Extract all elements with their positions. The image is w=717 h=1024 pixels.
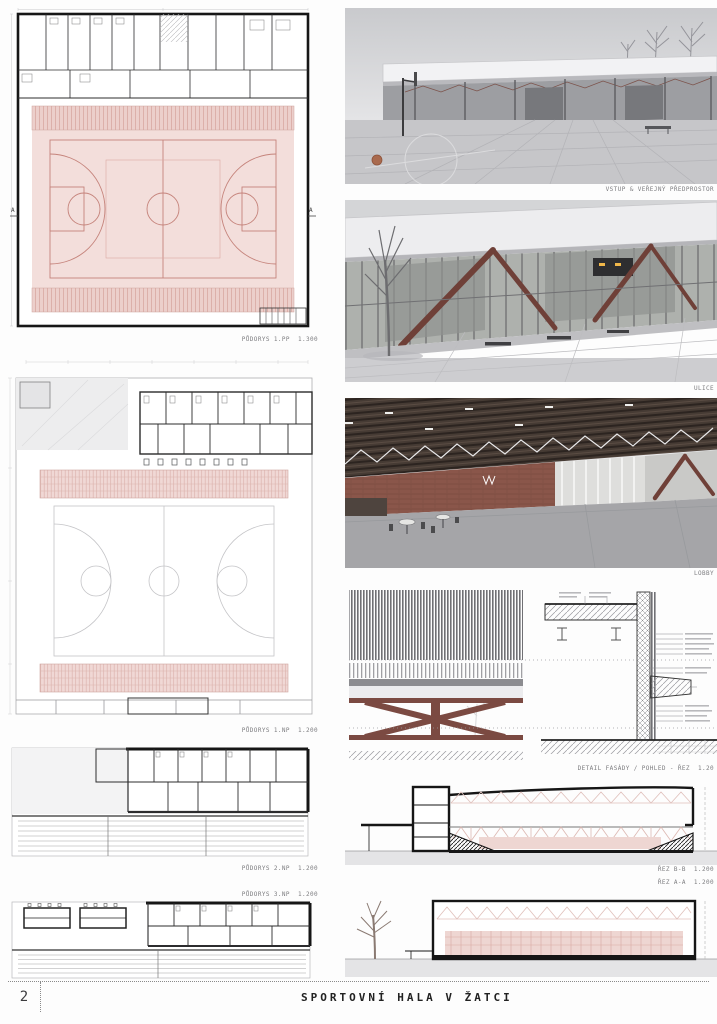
sheet-title: SPORTOVNÍ HALA V ŽATCI bbox=[301, 991, 513, 1004]
render-lobby-caption: LOBBY bbox=[694, 570, 714, 577]
page-number: 2 bbox=[20, 989, 28, 1005]
plan-1np-caption: PŮDORYS 1.NP 1.200 bbox=[242, 727, 318, 734]
bare-tree bbox=[357, 901, 391, 959]
ground bbox=[345, 851, 717, 865]
plan-1pp-caption: PŮDORYS 1.PP 1.300 bbox=[242, 336, 318, 343]
shaft-hatch bbox=[160, 14, 188, 42]
facade-detail-caption: DETAIL FASÁDY / POHLED - ŘEZ 1.20 bbox=[578, 765, 714, 772]
section-aa-svg bbox=[345, 889, 717, 977]
presentation-board: A A PŮDORYS 1.PP 1.300 bbox=[0, 0, 717, 1024]
base-slab bbox=[433, 955, 695, 958]
render-street-svg bbox=[345, 200, 717, 382]
render-entry-svg bbox=[345, 8, 717, 184]
tree-shadow bbox=[363, 351, 423, 361]
section-aa-drawing bbox=[345, 889, 717, 977]
plan-2np-caption: PŮDORYS 2.NP 1.200 bbox=[242, 865, 318, 872]
section-bb-caption: ŘEZ B-B 1.200 bbox=[658, 866, 714, 873]
facade-elevation bbox=[349, 590, 523, 760]
base-slab bbox=[449, 850, 693, 853]
plaza bbox=[345, 120, 717, 184]
bar-counter bbox=[345, 498, 387, 516]
plan-3np-drawing bbox=[8, 898, 314, 980]
render-entry bbox=[345, 8, 717, 184]
render-street bbox=[345, 200, 717, 382]
ground bbox=[345, 959, 717, 977]
section-marker-a-right: A bbox=[309, 207, 313, 214]
plan-2np-svg bbox=[8, 742, 314, 862]
page-number-box: 2 bbox=[8, 982, 41, 1012]
plan-2np-drawing bbox=[8, 742, 314, 862]
scoreboard bbox=[593, 258, 633, 276]
void-over-hall bbox=[12, 748, 128, 814]
section-bb-svg bbox=[345, 779, 717, 865]
render-street-caption: ULICE bbox=[694, 385, 714, 392]
render-entry-caption: VSTUP & VEŘEJNÝ PŘEDPROSTOR bbox=[606, 186, 714, 193]
court-pit bbox=[479, 837, 661, 849]
pavement bbox=[345, 358, 717, 382]
render-lobby-svg bbox=[345, 398, 717, 568]
section-bb-drawing bbox=[345, 779, 717, 865]
plan-1np-drawing bbox=[8, 358, 320, 724]
plan-1np-svg bbox=[8, 358, 320, 724]
glass-wall-mullions bbox=[555, 456, 645, 506]
plan-3np-caption: PŮDORYS 3.NP 1.200 bbox=[242, 891, 318, 898]
steel-beams bbox=[557, 628, 621, 640]
roof-truss bbox=[451, 792, 691, 803]
footer-divider bbox=[8, 981, 709, 982]
tribune-bottom bbox=[32, 288, 294, 312]
section-aa-caption: ŘEZ A-A 1.200 bbox=[658, 879, 714, 886]
plan-1pp-svg: A A bbox=[10, 8, 316, 334]
plan-3np-svg bbox=[8, 898, 314, 980]
facade-detail-drawing bbox=[345, 588, 717, 762]
tribune-top bbox=[32, 106, 294, 130]
render-lobby bbox=[345, 398, 717, 568]
facade-detail-svg bbox=[345, 588, 717, 762]
basketball bbox=[372, 155, 382, 165]
tribune-block bbox=[445, 931, 683, 955]
plan-1pp-drawing: A A bbox=[10, 8, 316, 334]
base-hatch bbox=[349, 751, 523, 760]
entry-room bbox=[20, 382, 50, 408]
section-marker-a-left: A bbox=[11, 207, 15, 214]
